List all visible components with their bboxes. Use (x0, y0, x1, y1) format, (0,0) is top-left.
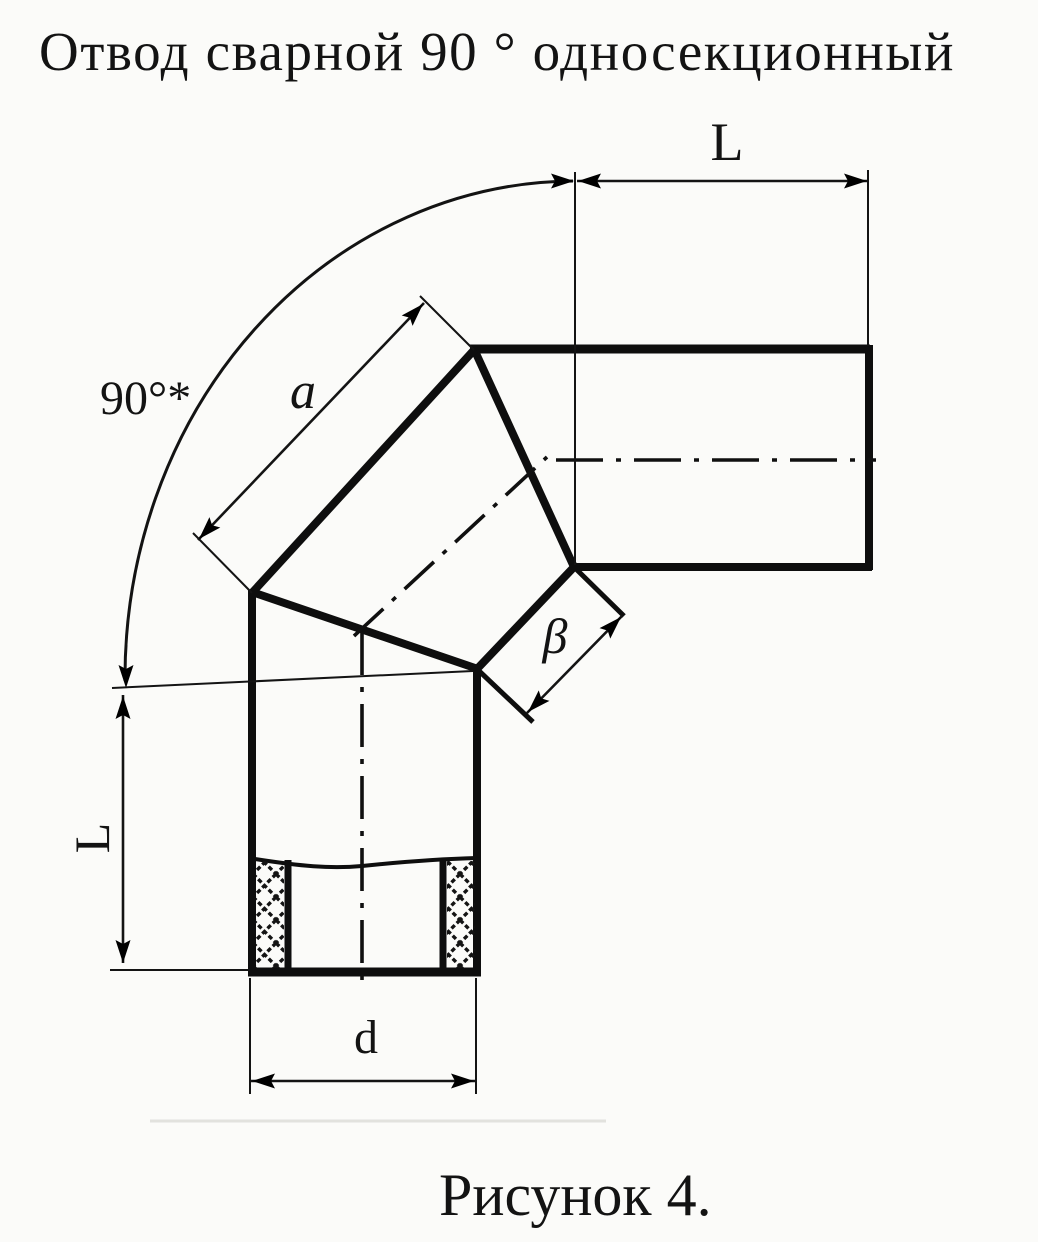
svg-text:L: L (64, 823, 120, 854)
svg-text:L: L (711, 112, 744, 172)
svg-text:a: a (290, 363, 316, 420)
svg-text:Рисунок 4.: Рисунок 4. (439, 1162, 712, 1228)
svg-text:d: d (354, 1011, 378, 1064)
svg-text:Отвод сварной 90 ° односекцион: Отвод сварной 90 ° односекционный (39, 21, 955, 82)
svg-text:90°*: 90°* (100, 372, 191, 425)
svg-text:β: β (542, 608, 568, 664)
